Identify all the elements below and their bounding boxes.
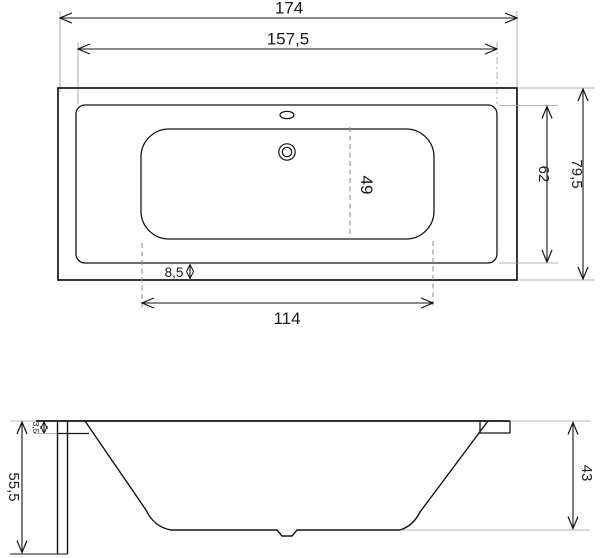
basin-left-slope bbox=[85, 421, 171, 530]
drain-outer-circle bbox=[279, 144, 295, 160]
tub-basin-outline bbox=[141, 129, 434, 239]
dim-label-rim-inner-length: 157,5 bbox=[267, 30, 310, 49]
rim-right-lip bbox=[480, 421, 510, 433]
top-view: 174 157,5 49 8,5 114 62 bbox=[58, 0, 595, 328]
side-view: 55,5 3,5 43 bbox=[5, 421, 595, 554]
dim-label-overall-width: 79,5 bbox=[568, 159, 585, 188]
dim-label-basin-center: 49 bbox=[357, 176, 376, 195]
dim-label-rim-inner-width: 62 bbox=[535, 166, 552, 183]
dim-label-overall-length: 174 bbox=[275, 0, 303, 18]
dim-label-rim-border: 8,5 bbox=[165, 265, 184, 280]
drain-inner-circle bbox=[282, 147, 291, 156]
bathtub-technical-drawing: 174 157,5 49 8,5 114 62 bbox=[0, 0, 600, 558]
dim-label-rim-thickness: 3,5 bbox=[31, 422, 41, 434]
dim-label-basin-length: 114 bbox=[273, 309, 300, 328]
dim-label-overall-height: 55,5 bbox=[5, 472, 22, 501]
basin-floor-with-drain-recess bbox=[171, 530, 400, 536]
dim-label-basin-depth: 43 bbox=[578, 465, 595, 482]
basin-right-slope bbox=[400, 421, 488, 530]
tub-outer-edge bbox=[58, 88, 517, 280]
drawing-svg: 174 157,5 49 8,5 114 62 bbox=[0, 0, 600, 558]
overflow-slot bbox=[280, 111, 294, 118]
